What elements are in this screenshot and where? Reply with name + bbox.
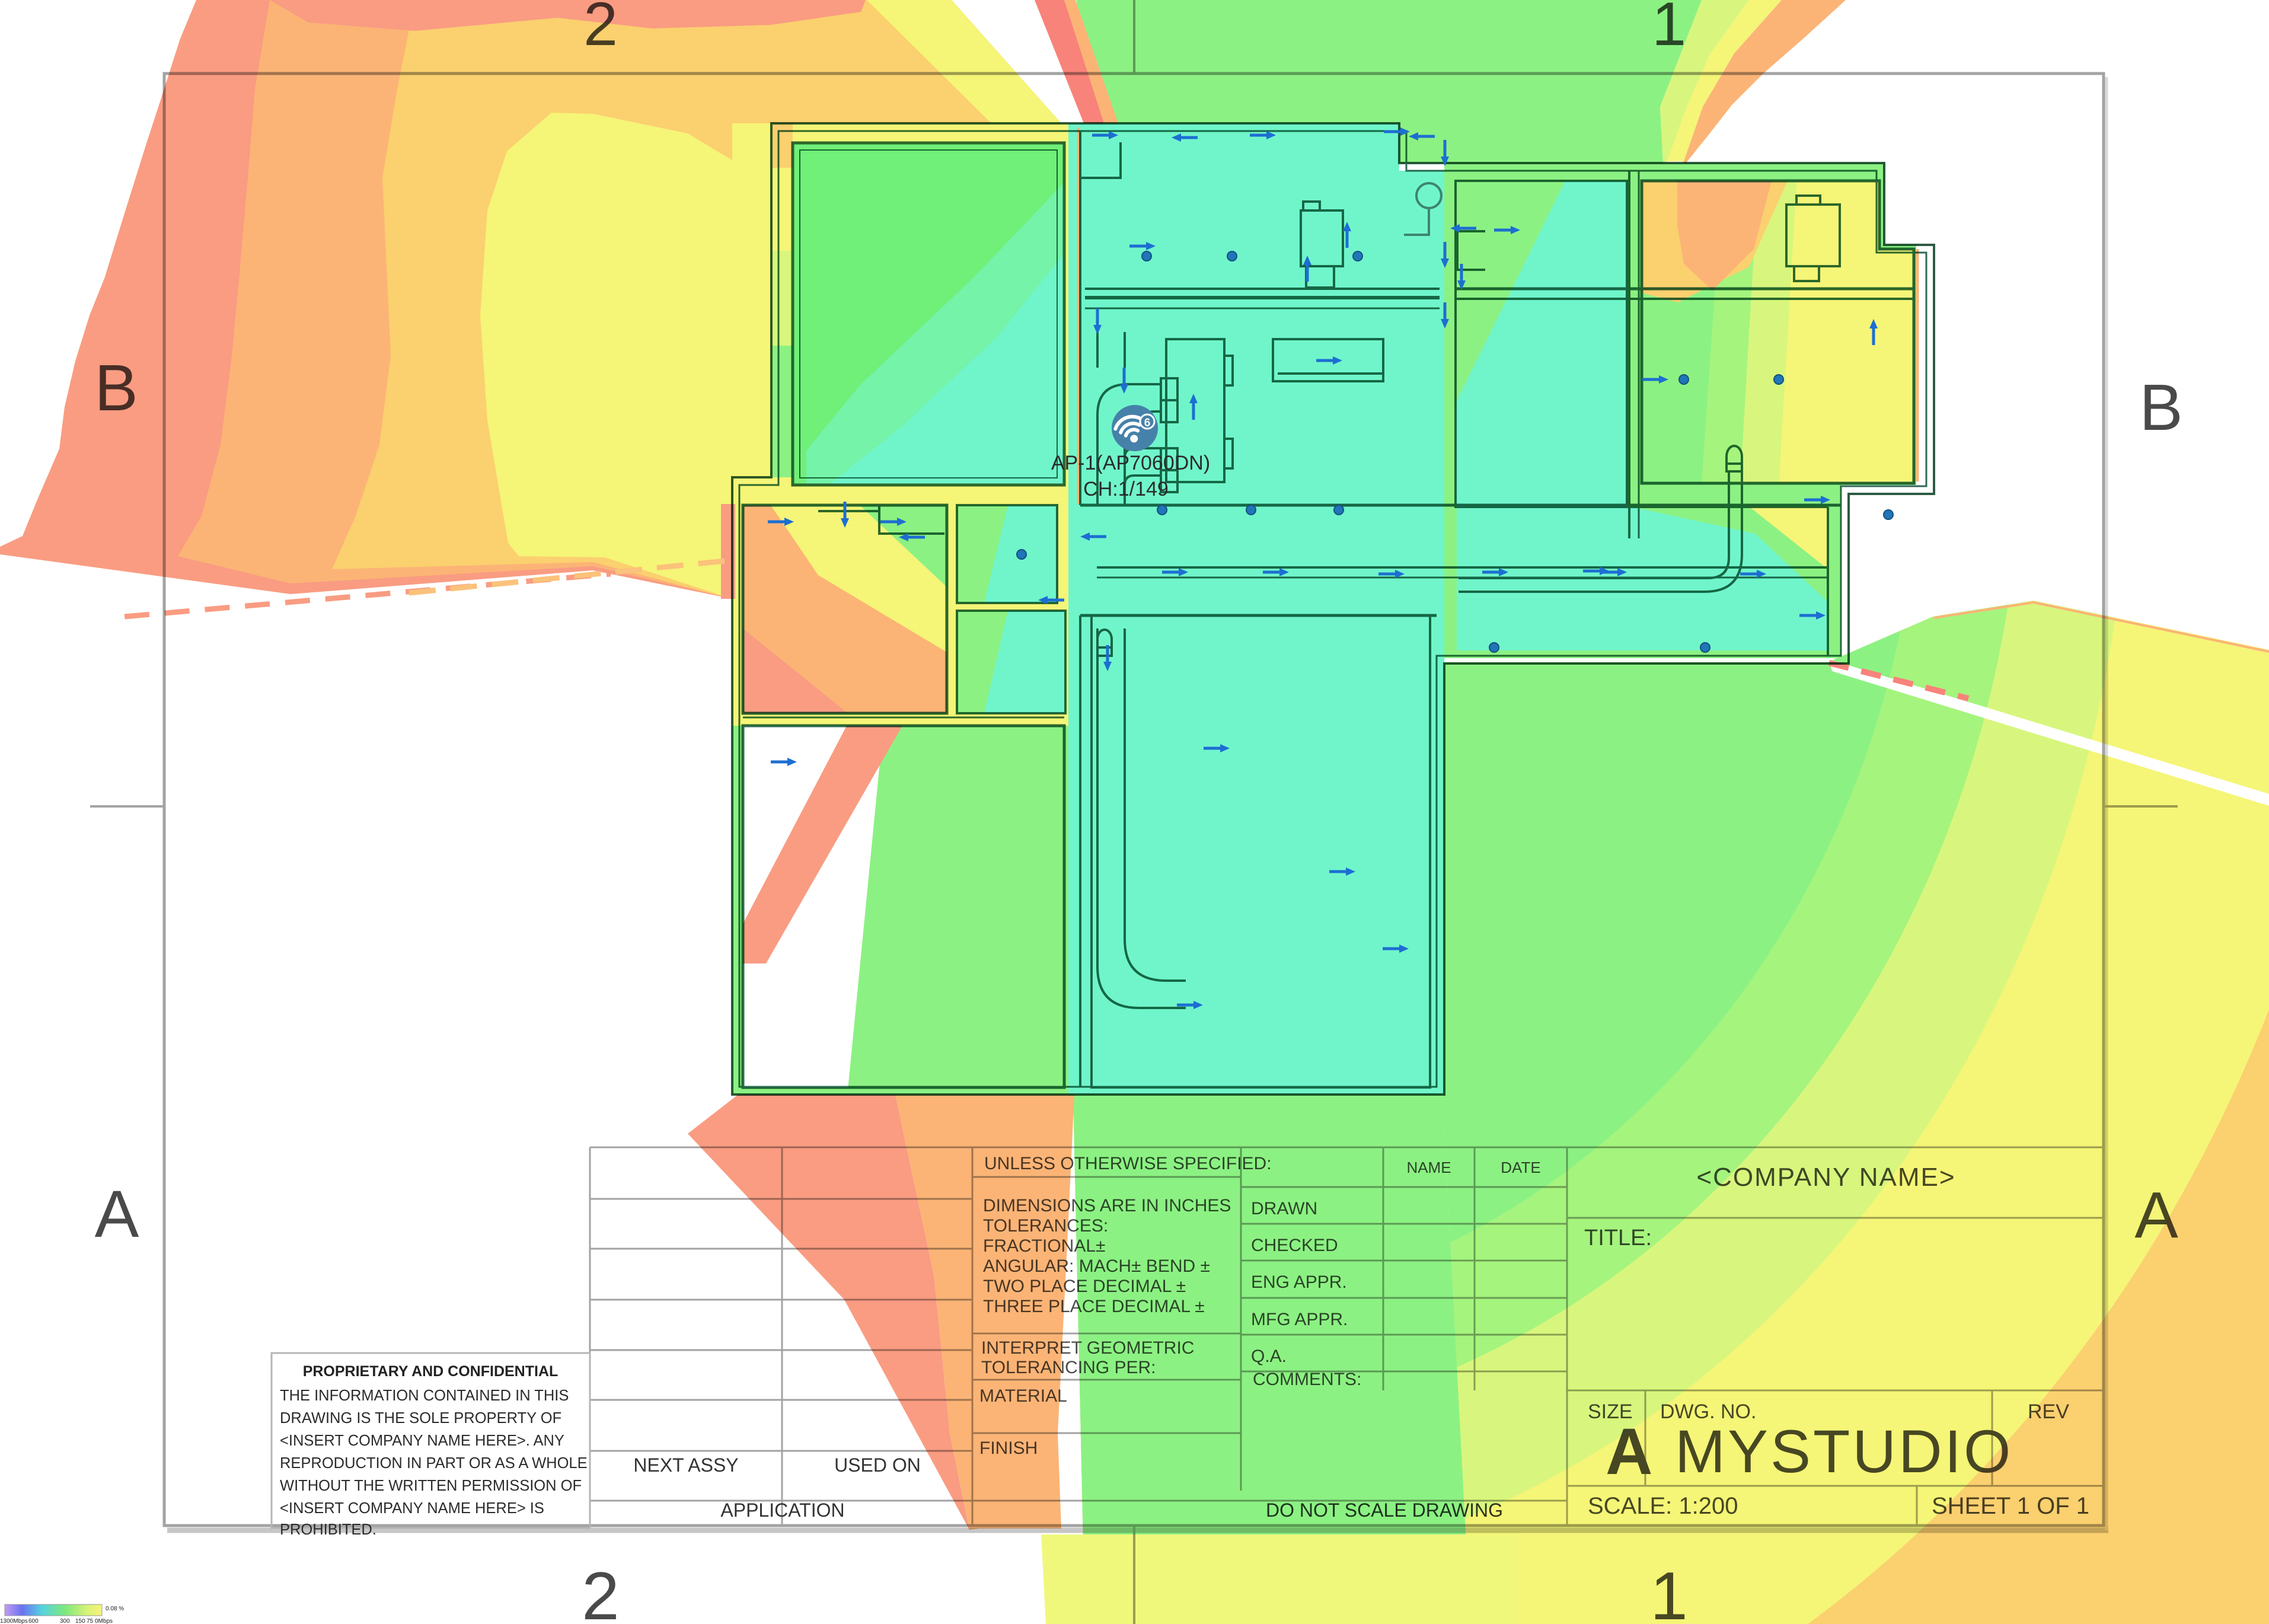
svg-text:AP-1(AP7060DN): AP-1(AP7060DN)	[1051, 452, 1210, 474]
svg-text:CH:1/149: CH:1/149	[1083, 478, 1169, 500]
svg-text:6: 6	[1144, 417, 1151, 429]
